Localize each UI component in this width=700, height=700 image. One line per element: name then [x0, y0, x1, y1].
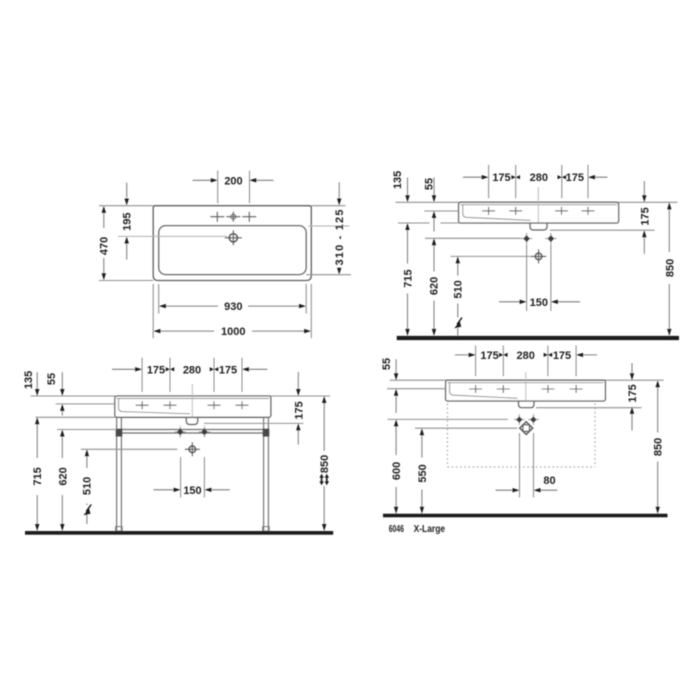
svg-text:55: 55: [46, 373, 58, 385]
svg-text:X-Large: X-Large: [414, 524, 446, 535]
svg-text:135: 135: [392, 171, 404, 189]
svg-text:930: 930: [224, 301, 242, 313]
svg-text:850: 850: [653, 438, 665, 456]
svg-text:6046: 6046: [389, 524, 404, 535]
svg-text:175: 175: [627, 384, 639, 402]
svg-text:1000: 1000: [221, 326, 245, 338]
svg-text:850: 850: [319, 455, 331, 473]
svg-text:620: 620: [428, 277, 440, 295]
svg-text:175: 175: [566, 172, 584, 184]
svg-text:135: 135: [23, 371, 35, 389]
svg-text:280: 280: [530, 172, 548, 184]
svg-text:600: 600: [391, 462, 403, 480]
svg-text:195: 195: [121, 213, 133, 231]
svg-text:510: 510: [453, 280, 465, 298]
svg-text:175: 175: [293, 401, 305, 419]
svg-text:280: 280: [183, 364, 201, 376]
svg-text:550: 550: [417, 464, 429, 482]
svg-text:715: 715: [32, 467, 44, 485]
svg-text:715: 715: [402, 269, 414, 287]
svg-text:150: 150: [183, 485, 201, 497]
svg-text:80: 80: [543, 475, 555, 487]
svg-text:175: 175: [219, 364, 237, 376]
svg-text:55: 55: [381, 358, 393, 370]
svg-text:150: 150: [530, 297, 548, 309]
svg-text:200: 200: [224, 175, 242, 187]
svg-text:280: 280: [517, 350, 535, 362]
svg-text:175: 175: [147, 364, 165, 376]
svg-text:510: 510: [82, 477, 94, 495]
svg-text:175: 175: [480, 350, 498, 362]
svg-text:310 - 125: 310 - 125: [334, 210, 346, 266]
svg-text:175: 175: [492, 172, 510, 184]
svg-text:175: 175: [640, 207, 652, 225]
svg-text:470: 470: [99, 237, 111, 255]
svg-text:175: 175: [553, 350, 571, 362]
svg-text:620: 620: [57, 467, 69, 485]
svg-text:850: 850: [664, 259, 676, 277]
